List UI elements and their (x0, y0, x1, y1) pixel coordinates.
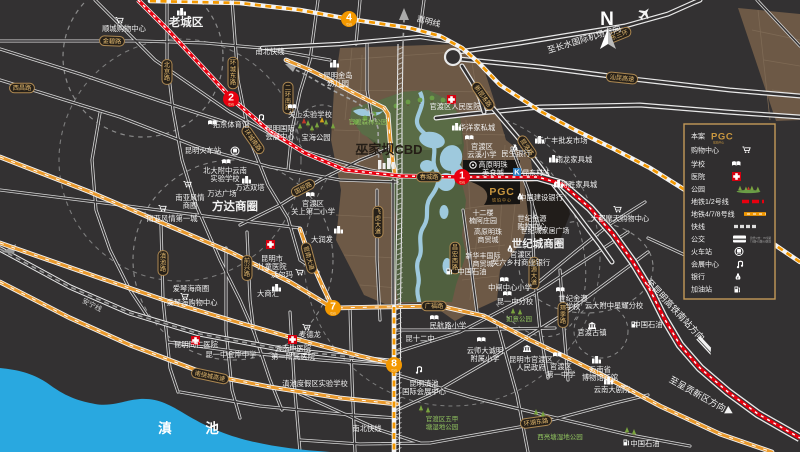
svg-text:春城路: 春城路 (420, 173, 439, 181)
svg-text:麦德龙: 麦德龙 (299, 330, 321, 339)
svg-text:官渡区五甲塘湿地公园: 官渡区五甲塘湿地公园 (426, 414, 459, 431)
svg-text:琥珀中心: 琥珀中心 (713, 141, 724, 145)
svg-text:加油站: 加油站 (691, 285, 712, 294)
svg-text:广福路: 广福路 (425, 302, 444, 310)
svg-text:昆东村站: 昆东村站 (523, 168, 550, 177)
svg-text:滇池度假区实验学校: 滇池度假区实验学校 (282, 379, 348, 388)
svg-text:官渡区人民医院: 官渡区人民医院 (429, 102, 481, 111)
svg-text:银行: 银行 (691, 272, 705, 281)
svg-text:老城区: 老城区 (168, 15, 204, 29)
svg-text:7.8路4.5路9.8路等: 7.8路4.5路9.8路等 (750, 240, 772, 244)
svg-text:爱琴海商圈: 爱琴海商圈 (173, 284, 209, 293)
svg-text:昆一中金岸中学: 昆一中金岸中学 (205, 350, 256, 359)
svg-text:中闸中心小学: 中闸中心小学 (488, 283, 532, 292)
svg-text:官渡森林公园: 官渡森林公园 (349, 117, 388, 126)
svg-text:宝海公园: 宝海公园 (301, 133, 330, 142)
svg-text:地铁4/7/8号线: 地铁4/7/8号线 (691, 210, 735, 219)
svg-text:如意公园: 如意公园 (506, 314, 532, 323)
svg-text:号线: 号线 (346, 22, 352, 27)
svg-text:十二楼楠阿庄园: 十二楼楠阿庄园 (469, 208, 497, 225)
svg-text:云师大诚明附属小学: 云师大诚明附属小学 (467, 346, 503, 363)
svg-text:公交: 公交 (691, 235, 705, 244)
svg-text:公园: 公园 (691, 186, 705, 194)
svg-text:世纪城商圈: 世纪城商圈 (512, 237, 565, 250)
svg-text:途经公交：70余路: 途经公交：70余路 (750, 236, 771, 240)
svg-text:金碧路: 金碧路 (103, 37, 123, 46)
svg-text:学校: 学校 (691, 160, 705, 169)
svg-text:华洋家私城: 华洋家私城 (459, 123, 496, 132)
svg-text:西昌路: 西昌路 (13, 84, 32, 92)
svg-text:本案: 本案 (691, 132, 705, 141)
svg-text:巫家坝CBD: 巫家坝CBD (355, 142, 422, 157)
svg-text:号线: 号线 (391, 368, 397, 373)
svg-text:昆明同仁医院: 昆明同仁医院 (174, 340, 218, 349)
svg-text:官渡区第一中学: 官渡区第一中学 (546, 362, 575, 379)
svg-text:新广丰批发市场: 新广丰批发市场 (536, 136, 587, 145)
svg-text:中国石油: 中国石油 (457, 267, 486, 276)
svg-text:高原明珠商贸城: 高原明珠商贸城 (474, 227, 502, 244)
svg-text:顺城购物中心: 顺城购物中心 (102, 24, 146, 33)
svg-text:中国石油: 中国石油 (630, 439, 659, 448)
svg-text:号线: 号线 (330, 311, 336, 316)
svg-text:前兴路: 前兴路 (244, 257, 251, 278)
svg-text:昆明火车站: 昆明火车站 (185, 146, 221, 155)
svg-text:方达商圈: 方达商圈 (212, 199, 258, 213)
svg-text:南亚风情第一城: 南亚风情第一城 (146, 214, 198, 223)
svg-text:云大附中星耀分校: 云大附中星耀分校 (585, 301, 644, 310)
svg-text:琥珀中心: 琥珀中心 (492, 197, 512, 203)
svg-text:万达广场: 万达广场 (207, 189, 236, 198)
svg-text:西亮塘湿地公园: 西亮塘湿地公园 (537, 432, 583, 441)
svg-text:官渡古镇: 官渡古镇 (577, 328, 606, 337)
svg-text:滇 池: 滇 池 (158, 420, 234, 436)
svg-text:快线: 快线 (691, 222, 705, 231)
svg-text:南北快线: 南北快线 (255, 47, 285, 56)
svg-text:万达双塔: 万达双塔 (235, 183, 265, 192)
svg-text:得胜家具城: 得胜家具城 (561, 180, 598, 189)
svg-text:中国建设银行: 中国建设银行 (519, 193, 563, 202)
svg-text:云南中医院第一附属医院: 云南中医院第一附属医院 (271, 344, 315, 361)
svg-text:号线: 号线 (228, 102, 234, 107)
svg-text:雨龙家具城: 雨龙家具城 (556, 155, 593, 164)
svg-text:高原明珠美食城: 高原明珠美食城 (478, 160, 508, 177)
svg-text:云南大剧院: 云南大剧院 (594, 385, 631, 394)
svg-text:昆明金岛幼儿园: 昆明金岛幼儿园 (323, 71, 352, 88)
svg-text:关上实验学校: 关上实验学校 (288, 110, 332, 119)
svg-text:沃尔玛: 沃尔玛 (271, 270, 293, 279)
svg-text:医院: 医院 (691, 172, 705, 181)
svg-text:民生银行: 民生银行 (501, 149, 530, 158)
svg-text:购物中心: 购物中心 (691, 146, 719, 155)
svg-text:中国石油: 中国石油 (633, 320, 662, 329)
svg-text:环城东路: 环城东路 (230, 60, 237, 87)
svg-text:火车站: 火车站 (691, 247, 712, 256)
svg-text:大润发: 大润发 (311, 235, 334, 244)
svg-text:会展中心: 会展中心 (691, 260, 719, 269)
svg-text:K: K (514, 168, 520, 177)
svg-text:昆明市儿童医院: 昆明市儿童医院 (257, 254, 287, 271)
svg-text:大都摩天购物中心: 大都摩天购物中心 (591, 214, 650, 223)
svg-text:南北快线: 南北快线 (352, 424, 382, 433)
svg-text:民航路小学: 民航路小学 (430, 321, 466, 330)
svg-text:PGC: PGC (489, 186, 514, 198)
svg-text:大商汇: 大商汇 (257, 289, 279, 298)
svg-text:官渡区云溪小学: 官渡区云溪小学 (467, 142, 496, 159)
svg-text:地铁1/2号线: 地铁1/2号线 (691, 197, 729, 206)
svg-text:北京路: 北京路 (164, 61, 171, 82)
svg-text:昆十二中: 昆十二中 (405, 334, 434, 343)
svg-text:号线: 号线 (459, 180, 465, 185)
svg-text:昆明国际会展中心: 昆明国际会展中心 (265, 124, 295, 141)
svg-text:拓东体育馆: 拓东体育馆 (213, 120, 249, 129)
svg-text:N: N (600, 9, 614, 30)
svg-text:昆一中分校: 昆一中分校 (497, 297, 534, 306)
svg-text:爱琴海购物中心: 爱琴海购物中心 (166, 298, 218, 307)
svg-text:滇池路: 滇池路 (160, 252, 167, 273)
svg-text:飞虎大道: 飞虎大道 (375, 209, 381, 236)
svg-text:世纪城家居广场: 世纪城家居广场 (521, 226, 570, 235)
